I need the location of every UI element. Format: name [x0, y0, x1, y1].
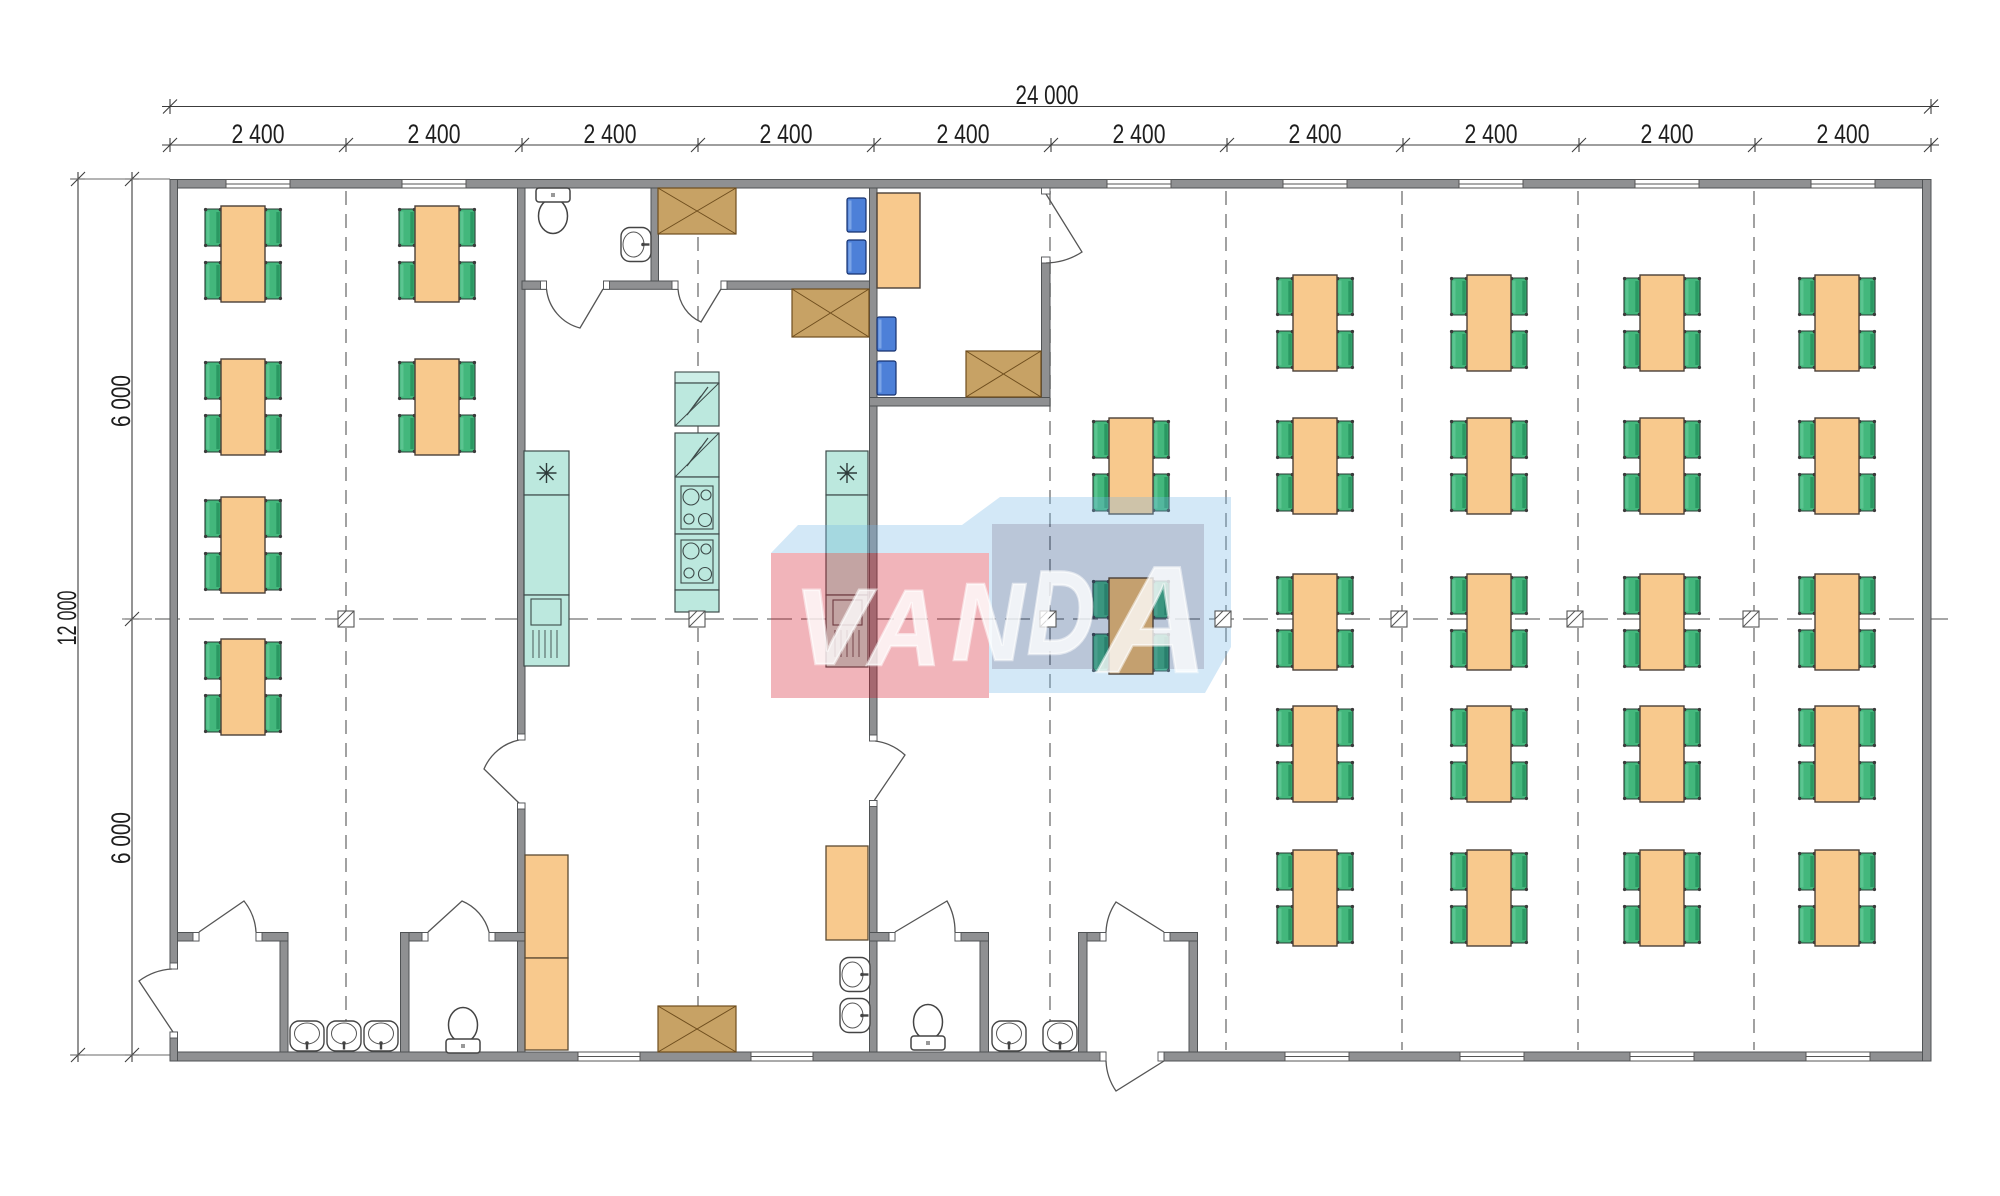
svg-text:2 400: 2 400	[232, 119, 285, 149]
svg-text:2 400: 2 400	[584, 119, 637, 149]
svg-text:12 000: 12 000	[52, 591, 82, 646]
svg-text:6 000: 6 000	[106, 375, 136, 427]
svg-text:24 000: 24 000	[1016, 80, 1079, 110]
svg-text:6 000: 6 000	[106, 812, 136, 864]
svg-text:2 400: 2 400	[1465, 119, 1518, 149]
svg-text:D: D	[1027, 546, 1095, 680]
svg-text:2 400: 2 400	[937, 119, 990, 149]
svg-text:A: A	[1096, 535, 1208, 705]
svg-text:V: V	[794, 566, 876, 687]
svg-text:A: A	[866, 567, 941, 688]
svg-text:2 400: 2 400	[408, 119, 461, 149]
svg-text:2 400: 2 400	[1817, 119, 1870, 149]
svg-text:N: N	[952, 561, 1026, 684]
svg-text:2 400: 2 400	[760, 119, 813, 149]
svg-text:2 400: 2 400	[1641, 119, 1694, 149]
svg-text:2 400: 2 400	[1113, 119, 1166, 149]
svg-text:2 400: 2 400	[1289, 119, 1342, 149]
